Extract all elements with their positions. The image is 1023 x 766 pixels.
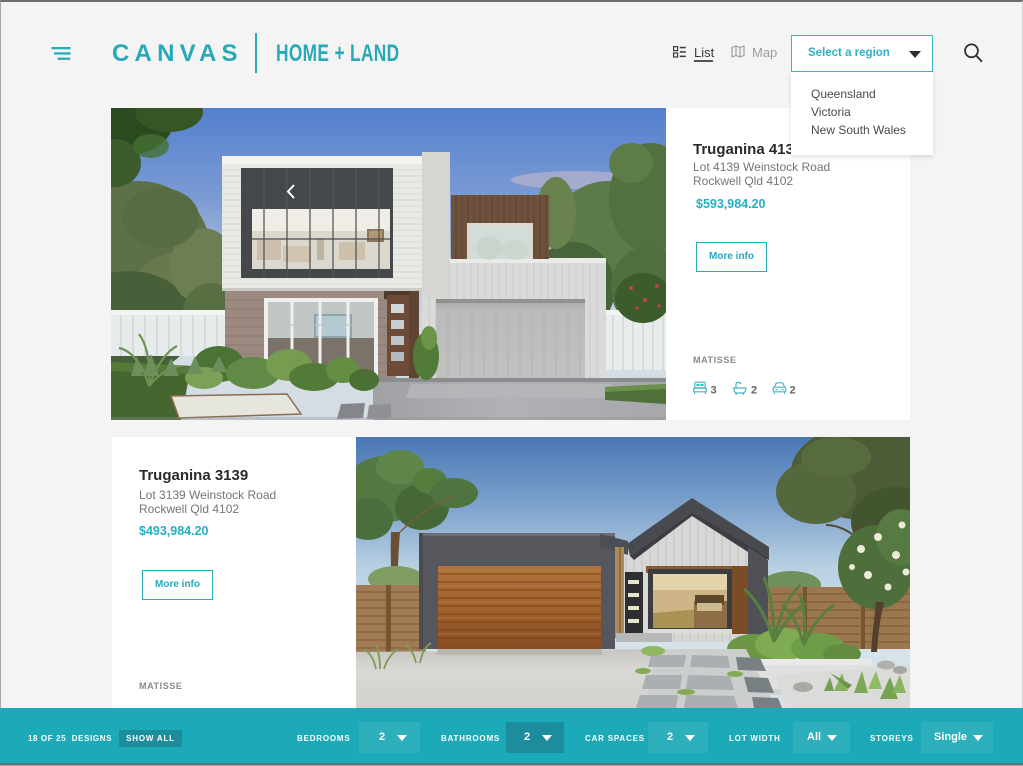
svg-text:2: 2 [751, 385, 757, 397]
svg-text:2: 2 [790, 385, 796, 397]
svg-text:3: 3 [711, 385, 717, 397]
